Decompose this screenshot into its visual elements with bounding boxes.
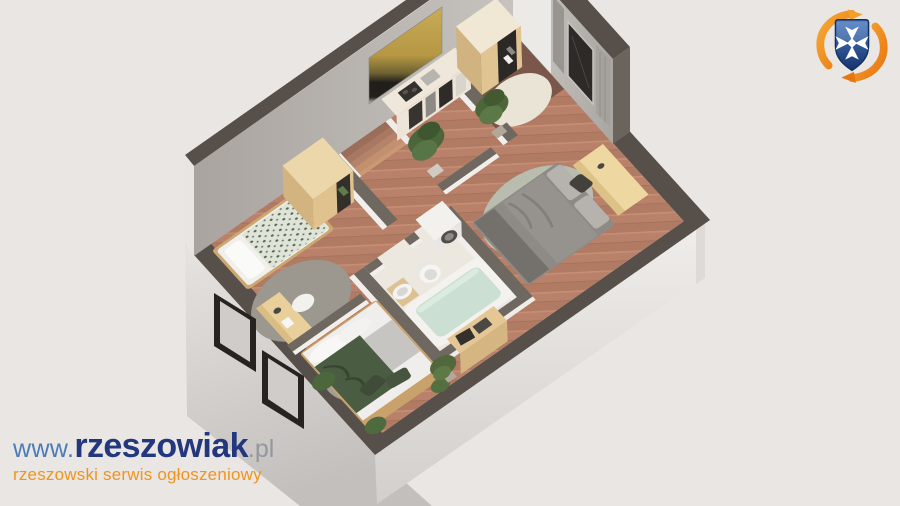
render-canvas: www.rzeszowiak.pl rzeszowski serwis ogło… xyxy=(0,0,900,506)
watermark-www: www. xyxy=(13,437,74,462)
watermark-url: www.rzeszowiak.pl xyxy=(13,429,274,463)
outer-wall-east-face xyxy=(696,220,705,284)
rzeszowiak-logo xyxy=(815,9,889,85)
wall-end-face xyxy=(185,155,194,256)
curtain xyxy=(596,45,610,127)
site-watermark: www.rzeszowiak.pl rzeszowski serwis ogło… xyxy=(13,429,274,483)
curtain xyxy=(553,0,564,74)
watermark-tagline: rzeszowski serwis ogłoszeniowy xyxy=(13,466,274,483)
watermark-tld: .pl xyxy=(248,437,274,462)
watermark-name: rzeszowiak xyxy=(74,429,248,463)
wall-step-face xyxy=(613,47,630,144)
